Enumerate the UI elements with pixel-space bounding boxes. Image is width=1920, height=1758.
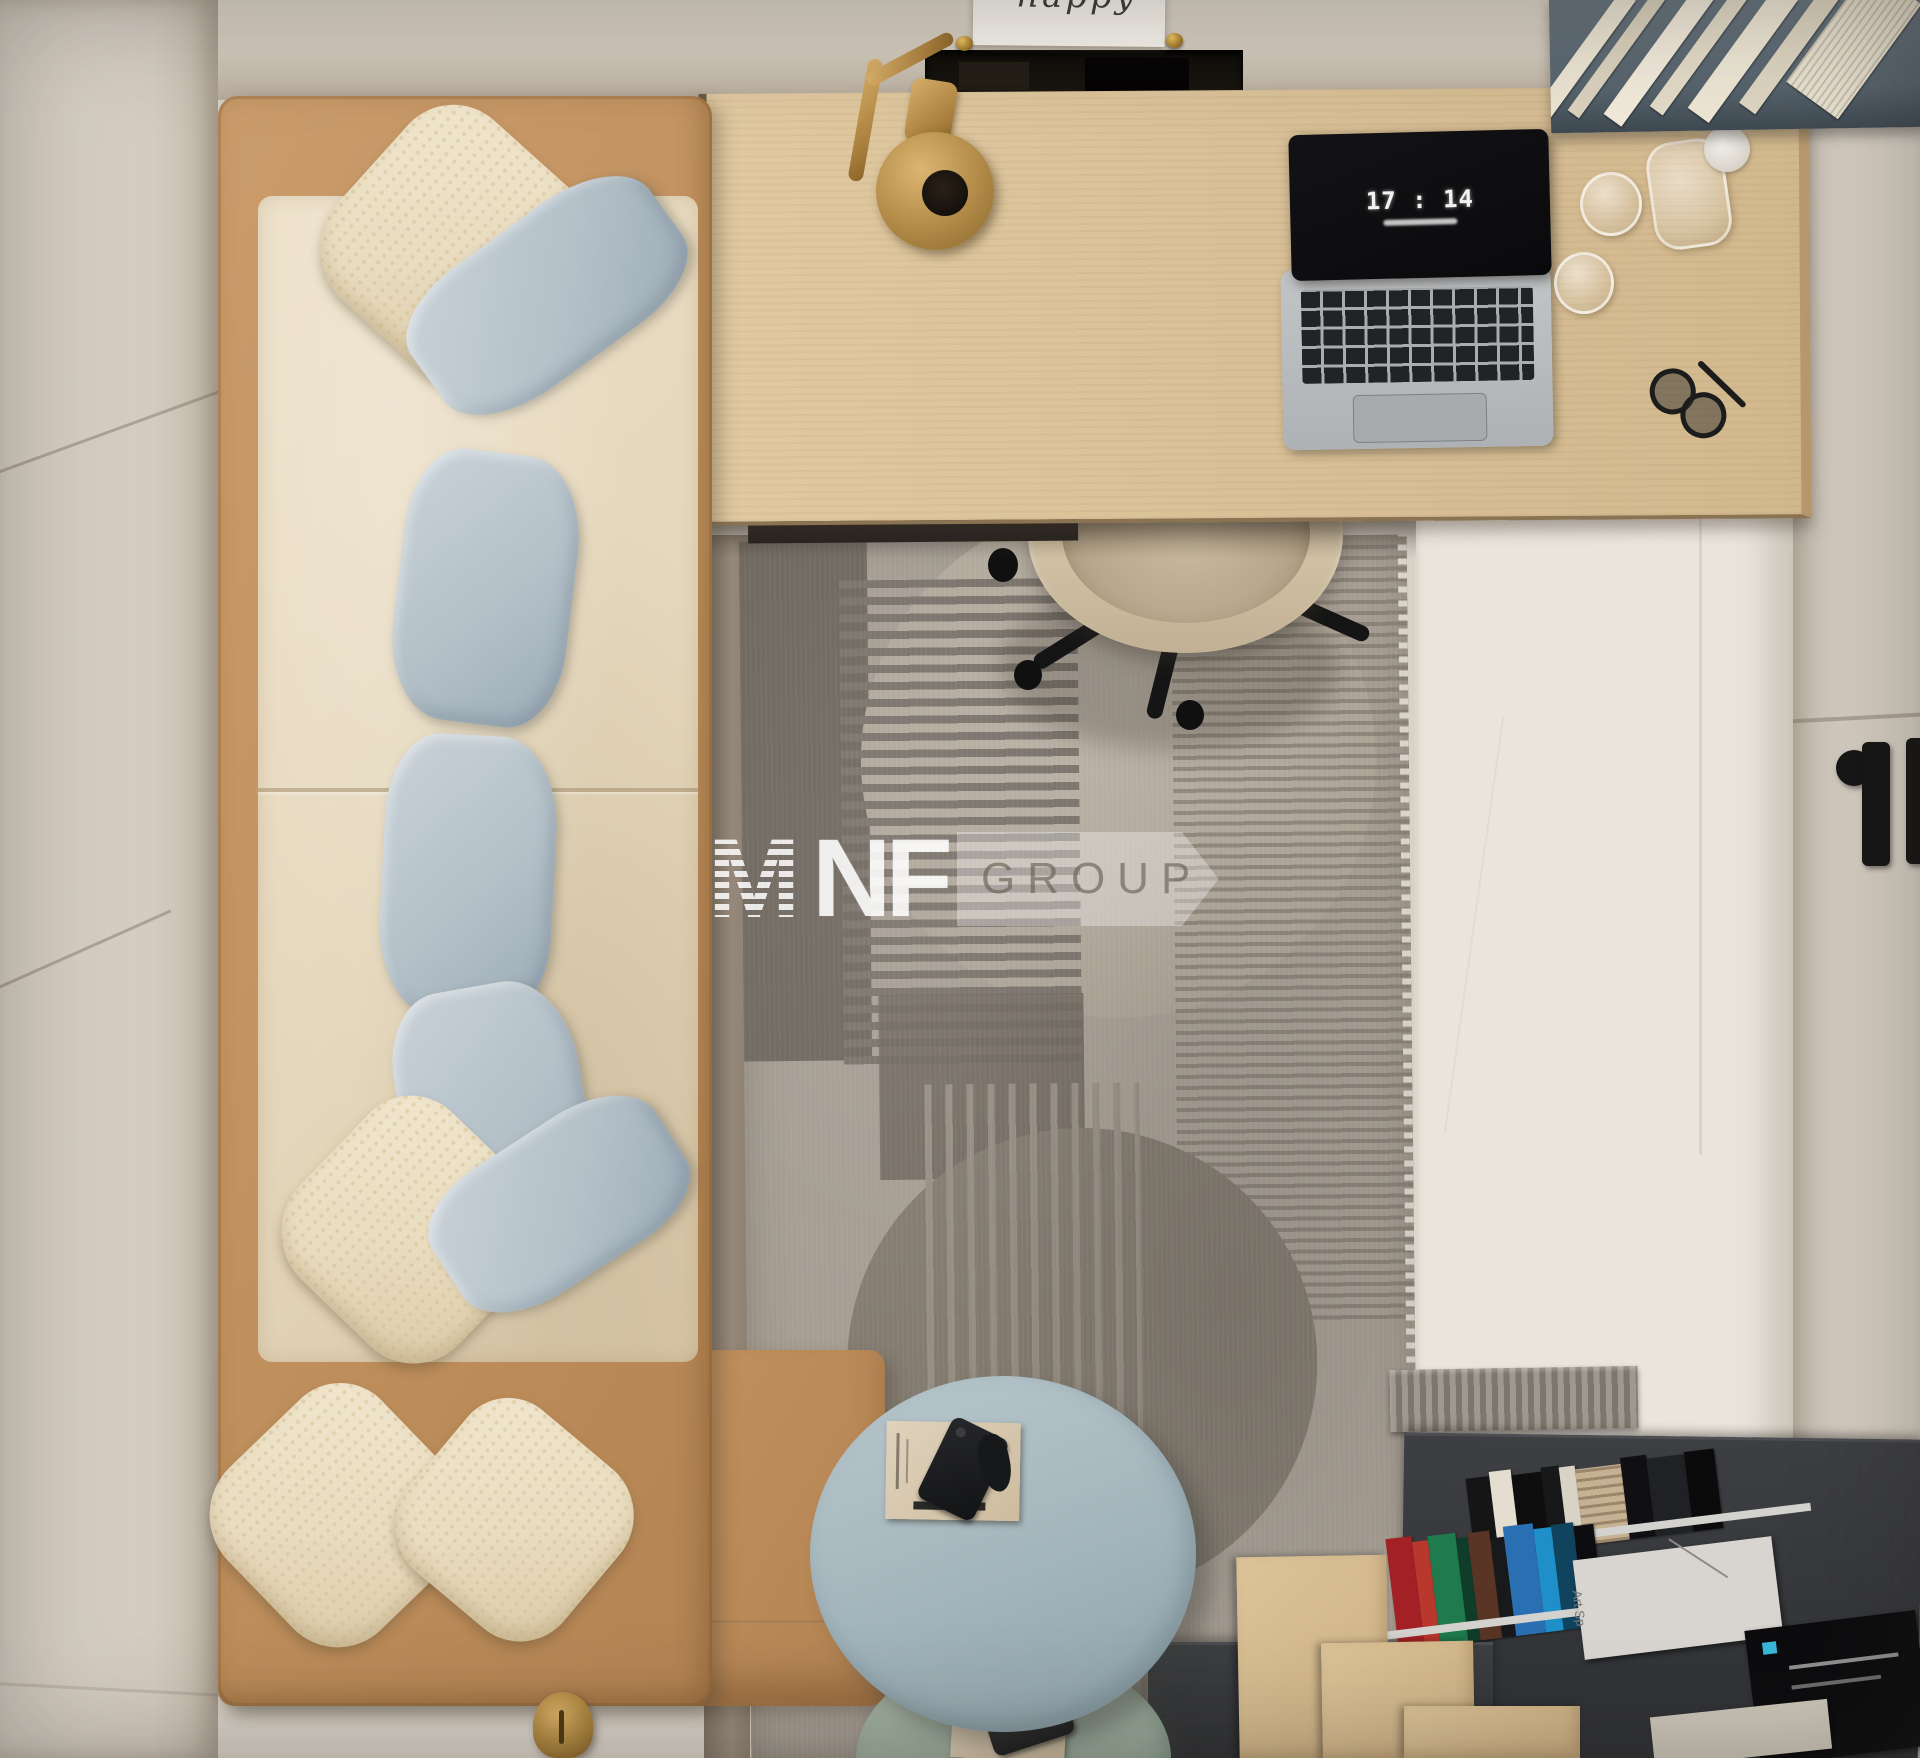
book-spine-text-blur [1791, 1675, 1881, 1690]
door-handle-bar-2 [1906, 738, 1920, 864]
art-book-graphic [1668, 1538, 1728, 1578]
chair-wheel [1176, 700, 1204, 730]
book-spine-text-blur [1789, 1652, 1899, 1669]
chair-wheel [1014, 660, 1042, 690]
side-table-blue [810, 1376, 1196, 1732]
niche-item [1085, 58, 1189, 92]
interior-render: 17 : 14 happy [0, 0, 1920, 1758]
niche-item [959, 62, 1029, 90]
vase-slit [559, 1710, 564, 1744]
door-handle [1836, 738, 1920, 868]
wall-shelf [1549, 0, 1920, 133]
marble-vein [1444, 717, 1504, 1133]
drinking-glass [1580, 172, 1642, 236]
left-wall [0, 0, 218, 1758]
phone-camera [954, 1426, 967, 1439]
book-sticker [1762, 1641, 1777, 1655]
laptop-date-blur [1383, 218, 1457, 226]
laptop-trackpad [1353, 393, 1488, 443]
poster-pin [1166, 33, 1183, 48]
rug-dark-block [878, 993, 1085, 1180]
art-book-label: Art Sp [1569, 1589, 1588, 1627]
carafe-cap [1704, 126, 1750, 172]
book-text-blur [896, 1433, 900, 1489]
book-text-blur [906, 1439, 909, 1483]
laptop-keyboard [1301, 286, 1535, 384]
laptop-screen: 17 : 14 [1288, 129, 1551, 281]
poster-text: happy [1017, 0, 1137, 17]
wall-poster: happy [973, 0, 1166, 47]
ribbed-box [1389, 1366, 1638, 1432]
gold-vase [533, 1692, 593, 1758]
marble-floor [1413, 415, 1793, 1460]
pillow-blue [375, 731, 562, 1022]
drinking-glass-2 [1554, 252, 1614, 314]
laptop-clock: 17 : 14 [1365, 184, 1474, 215]
rug-dark-column [739, 540, 872, 1061]
poster-pin [956, 36, 973, 51]
tile-seam [1699, 415, 1702, 1155]
desk-lamp-lens [922, 170, 968, 216]
laptop [1280, 266, 1553, 451]
door-handle-bar [1862, 742, 1890, 866]
wood-box [1404, 1706, 1580, 1758]
back-wall [218, 0, 1560, 100]
